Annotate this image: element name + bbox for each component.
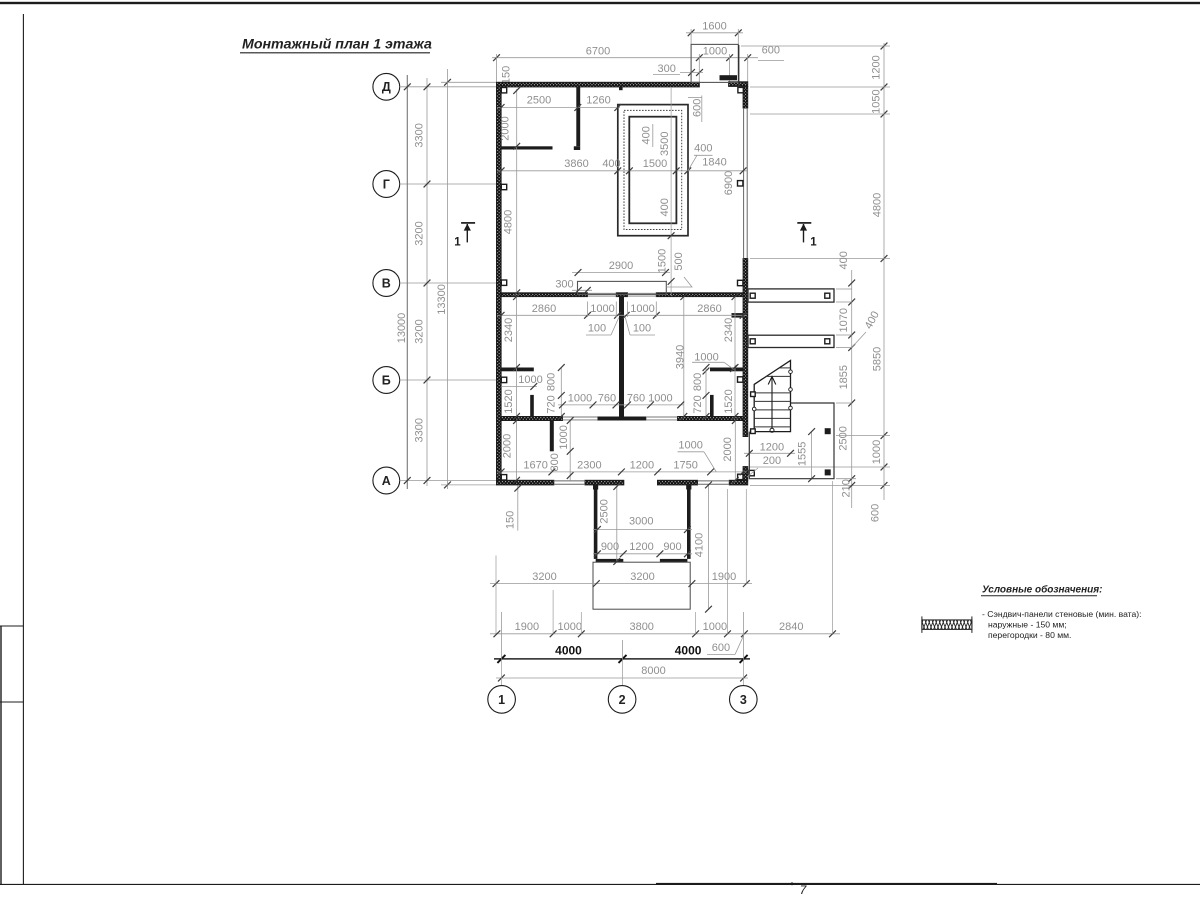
svg-text:1750: 1750 (673, 459, 697, 471)
svg-text:В: В (382, 276, 391, 290)
svg-text:2500: 2500 (599, 499, 611, 523)
svg-text:900: 900 (601, 541, 619, 553)
svg-text:600: 600 (869, 504, 881, 522)
svg-text:210: 210 (840, 479, 852, 497)
svg-text:1000: 1000 (703, 46, 727, 58)
svg-text:2840: 2840 (779, 621, 803, 633)
svg-text:2500: 2500 (527, 94, 551, 106)
svg-text:900: 900 (663, 541, 681, 553)
svg-text:6700: 6700 (586, 45, 610, 57)
svg-text:1520: 1520 (503, 389, 515, 413)
svg-text:Г: Г (383, 177, 390, 191)
svg-text:1200: 1200 (629, 541, 653, 553)
svg-text:300: 300 (555, 278, 573, 290)
svg-text:500: 500 (673, 252, 685, 270)
svg-text:1000: 1000 (694, 351, 718, 363)
svg-text:1000: 1000 (558, 425, 570, 449)
svg-text:1000: 1000 (871, 440, 883, 464)
svg-text:2860: 2860 (697, 303, 721, 315)
svg-text:2300: 2300 (577, 459, 601, 471)
svg-text:13300: 13300 (436, 284, 448, 315)
svg-text:1: 1 (454, 237, 461, 249)
svg-text:1900: 1900 (712, 571, 736, 583)
svg-text:3: 3 (740, 693, 747, 707)
svg-text:400: 400 (641, 126, 653, 144)
svg-text:3200: 3200 (630, 571, 654, 583)
svg-text:400: 400 (694, 143, 712, 155)
svg-text:3200: 3200 (414, 319, 426, 343)
svg-text:1555: 1555 (796, 442, 808, 466)
svg-text:4000: 4000 (675, 643, 702, 657)
svg-text:400: 400 (659, 198, 671, 216)
svg-text:Условные обозначения:: Условные обозначения: (982, 583, 1102, 595)
svg-text:150: 150 (500, 66, 512, 84)
svg-text:1500: 1500 (643, 158, 667, 170)
svg-text:720: 720 (692, 395, 704, 413)
svg-text:400: 400 (602, 158, 620, 170)
svg-text:3200: 3200 (414, 221, 426, 245)
svg-text:1: 1 (498, 693, 505, 707)
svg-text:Д: Д (382, 80, 391, 94)
svg-text:2340: 2340 (723, 318, 735, 342)
svg-text:800: 800 (692, 373, 704, 391)
svg-text:1900: 1900 (515, 621, 539, 633)
svg-text:1520: 1520 (723, 389, 735, 413)
svg-text:200: 200 (763, 455, 781, 467)
svg-text:1200: 1200 (630, 459, 654, 471)
svg-text:1000: 1000 (590, 303, 614, 315)
svg-text:2000: 2000 (500, 116, 512, 140)
svg-text:1000: 1000 (648, 393, 672, 405)
svg-text:3860: 3860 (564, 158, 588, 170)
svg-text:600: 600 (712, 642, 730, 654)
svg-text:5850: 5850 (871, 347, 883, 371)
svg-text:1200: 1200 (760, 442, 784, 454)
svg-text:400: 400 (838, 251, 850, 269)
svg-text:1000: 1000 (703, 621, 727, 633)
svg-text:перегородки - 80 мм.: перегородки - 80 мм. (988, 630, 1071, 640)
svg-text:2: 2 (619, 693, 626, 707)
svg-text:1670: 1670 (523, 459, 547, 471)
svg-text:760: 760 (627, 393, 645, 405)
svg-text:3300: 3300 (414, 123, 426, 147)
svg-text:А: А (382, 474, 391, 488)
svg-text:150: 150 (504, 511, 516, 529)
svg-text:1000: 1000 (518, 374, 542, 386)
svg-text:4800: 4800 (502, 210, 514, 234)
svg-text:1000: 1000 (558, 621, 582, 633)
svg-text:1000: 1000 (678, 440, 702, 452)
svg-text:6900: 6900 (723, 171, 735, 195)
svg-text:1000: 1000 (568, 393, 592, 405)
svg-text:1500: 1500 (657, 249, 669, 273)
svg-text:3800: 3800 (629, 621, 653, 633)
svg-text:Б: Б (382, 373, 391, 387)
svg-text:1000: 1000 (630, 303, 654, 315)
svg-text:760: 760 (598, 393, 616, 405)
svg-text:2340: 2340 (503, 318, 515, 342)
svg-text:3200: 3200 (532, 571, 556, 583)
svg-text:1855: 1855 (838, 365, 850, 389)
svg-text:2860: 2860 (532, 303, 556, 315)
svg-text:наружные - 150 мм;: наружные - 150 мм; (988, 620, 1067, 630)
svg-text:2500: 2500 (837, 426, 849, 450)
svg-text:4800: 4800 (871, 193, 883, 217)
svg-text:13000: 13000 (396, 313, 408, 344)
svg-text:Монтажный план 1 этажа: Монтажный план 1 этажа (242, 37, 432, 53)
svg-text:2000: 2000 (502, 434, 514, 458)
svg-text:1050: 1050 (870, 89, 882, 113)
svg-text:4000: 4000 (555, 643, 582, 657)
svg-text:1070: 1070 (838, 308, 850, 332)
svg-text:1840: 1840 (702, 157, 726, 169)
svg-text:3500: 3500 (659, 132, 671, 156)
svg-text:3300: 3300 (414, 418, 426, 442)
svg-text:800: 800 (545, 373, 557, 391)
svg-text:720: 720 (545, 395, 557, 413)
svg-text:8000: 8000 (641, 665, 665, 677)
svg-text:1600: 1600 (702, 21, 726, 33)
svg-text:1200: 1200 (870, 55, 882, 79)
svg-text:3000: 3000 (629, 516, 653, 528)
svg-text:100: 100 (633, 323, 651, 335)
svg-text:2000: 2000 (722, 437, 734, 461)
svg-text:4100: 4100 (694, 533, 706, 557)
svg-text:- Сэндвич-панели стеновые (мин: - Сэндвич-панели стеновые (мин. вата): (982, 609, 1142, 619)
svg-text:3940: 3940 (674, 345, 686, 369)
svg-text:2900: 2900 (609, 260, 633, 272)
svg-text:1260: 1260 (586, 94, 610, 106)
svg-text:300: 300 (658, 63, 676, 75)
svg-text:1: 1 (810, 237, 817, 249)
svg-text:100: 100 (588, 323, 606, 335)
